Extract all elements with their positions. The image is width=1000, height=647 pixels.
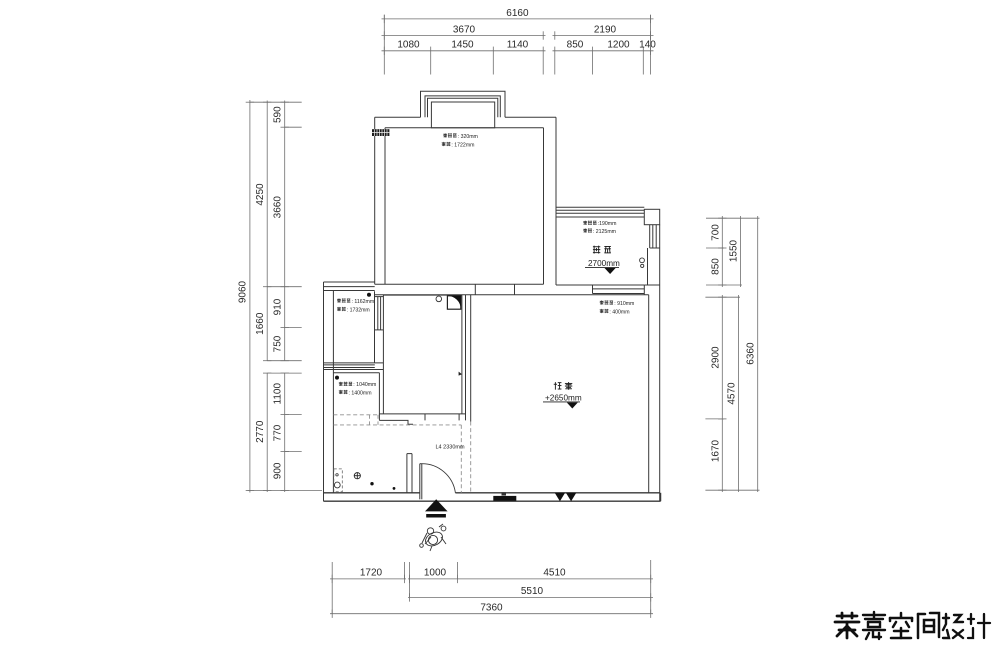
svg-text:: 1040mm: : 1040mm	[353, 382, 376, 388]
svg-text:140: 140	[639, 40, 656, 51]
svg-text:7360: 7360	[480, 603, 503, 614]
svg-text:850: 850	[567, 40, 584, 51]
svg-text:: 400mm: : 400mm	[609, 309, 629, 315]
svg-text:: 320mm: : 320mm	[458, 134, 478, 140]
svg-text:1550: 1550	[729, 239, 740, 262]
svg-text:1140: 1140	[507, 40, 529, 51]
svg-text:750: 750	[273, 335, 284, 352]
svg-text:6360: 6360	[746, 342, 757, 365]
svg-text:700: 700	[710, 224, 721, 241]
svg-text:4510: 4510	[543, 568, 566, 579]
svg-text:1000: 1000	[424, 568, 447, 579]
svg-text:2700mm: 2700mm	[588, 259, 620, 268]
svg-text:+2650mm: +2650mm	[545, 393, 582, 402]
svg-text:: 910mm: : 910mm	[614, 301, 634, 307]
svg-text:590: 590	[273, 106, 284, 123]
svg-text:: 1722mm: : 1722mm	[451, 142, 474, 148]
svg-text:4570: 4570	[727, 382, 738, 405]
svg-text:6160: 6160	[506, 8, 529, 19]
svg-text:: 1732mm: : 1732mm	[347, 307, 370, 313]
svg-text:1660: 1660	[255, 312, 266, 335]
svg-text:1720: 1720	[360, 568, 383, 579]
svg-text:L4 2330mm: L4 2330mm	[436, 445, 465, 451]
svg-text:1670: 1670	[710, 439, 721, 462]
svg-text:3670: 3670	[453, 24, 476, 35]
svg-text:770: 770	[273, 424, 284, 441]
svg-text:900: 900	[273, 462, 284, 479]
svg-text:850: 850	[710, 258, 721, 275]
svg-text:: 2125mm: : 2125mm	[593, 229, 616, 235]
svg-text:2770: 2770	[255, 420, 266, 443]
svg-text:910: 910	[273, 298, 284, 315]
svg-text:2900: 2900	[710, 346, 721, 369]
svg-text:4250: 4250	[255, 183, 266, 206]
svg-text::190mm: :190mm	[598, 221, 617, 227]
svg-text:: 1162mm: : 1162mm	[352, 299, 375, 305]
svg-text:1080: 1080	[397, 40, 420, 51]
svg-text:2190: 2190	[594, 24, 617, 35]
svg-text:: 1400mm: : 1400mm	[349, 390, 372, 396]
svg-text:5510: 5510	[521, 586, 544, 597]
svg-text:3660: 3660	[273, 196, 284, 219]
svg-text:1100: 1100	[273, 383, 284, 405]
svg-text:9060: 9060	[238, 280, 249, 303]
svg-text:1450: 1450	[451, 40, 474, 51]
svg-text:1200: 1200	[607, 40, 630, 51]
